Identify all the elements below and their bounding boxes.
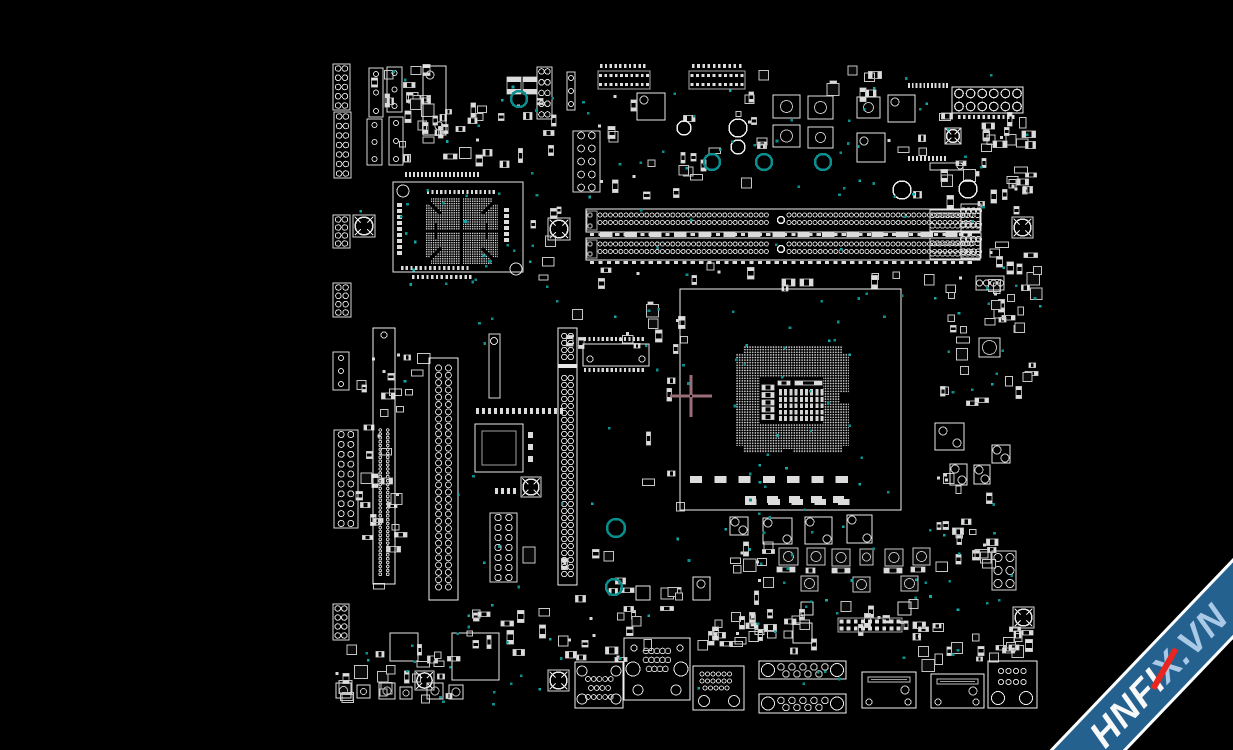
inductor xyxy=(847,515,872,543)
pad-circle xyxy=(491,338,498,345)
pcie-x1-slot[interactable] xyxy=(373,328,395,584)
smd-component-cluster xyxy=(335,645,459,703)
smd-passive xyxy=(806,568,815,573)
smd-passive xyxy=(777,567,795,572)
smd-component xyxy=(801,602,813,615)
component-outline xyxy=(489,334,500,398)
smd-component xyxy=(807,548,825,565)
ic-chip[interactable] xyxy=(857,133,885,162)
capacitor xyxy=(959,180,977,198)
pin-header xyxy=(334,112,351,178)
dimm-slot-2[interactable] xyxy=(586,238,980,264)
smd-component xyxy=(779,548,798,565)
smd-component-cluster xyxy=(964,128,1036,215)
chipset-bga[interactable] xyxy=(393,182,523,275)
pad-row xyxy=(600,232,958,237)
pad-row xyxy=(412,275,472,279)
smd-component-cluster xyxy=(598,92,767,199)
pin-header xyxy=(537,67,552,119)
boardview-canvas[interactable]: HNFIX.VN xyxy=(0,0,1233,750)
smd-passive xyxy=(778,381,790,385)
smd-component-cluster xyxy=(483,98,556,167)
capacitor-ring xyxy=(756,154,772,170)
capacitor xyxy=(677,121,691,135)
capacitor-ring xyxy=(606,579,622,595)
pad-row xyxy=(584,368,644,372)
usb-header[interactable] xyxy=(598,71,650,89)
pin-header xyxy=(333,283,351,317)
connector xyxy=(367,119,382,165)
smd-passive xyxy=(800,279,813,286)
connector xyxy=(333,352,349,390)
pad-row xyxy=(908,83,948,88)
ic-chip xyxy=(693,577,710,600)
mounting-hole xyxy=(548,670,569,691)
connector xyxy=(567,72,575,110)
smd-component-cluster xyxy=(937,473,992,503)
smd-passive xyxy=(911,567,925,572)
pin-header xyxy=(573,131,600,192)
inductor xyxy=(974,465,990,484)
pin-header xyxy=(333,604,349,640)
dimm-slot-1[interactable] xyxy=(586,209,980,236)
usb-port-row[interactable] xyxy=(759,661,846,679)
pad-row xyxy=(405,172,479,177)
smd-passive xyxy=(795,381,822,385)
pad-row xyxy=(600,64,646,68)
via-dots xyxy=(619,92,922,198)
smd-component xyxy=(901,576,918,591)
d-sub-connector[interactable] xyxy=(693,666,744,710)
inductor xyxy=(730,517,748,535)
pcie-x16-slot[interactable] xyxy=(429,358,458,600)
usb-port-row[interactable] xyxy=(759,694,846,713)
mounting-hole xyxy=(353,215,375,237)
usb-stack[interactable] xyxy=(862,672,916,708)
pad-row xyxy=(908,156,946,161)
smd-component xyxy=(808,96,833,119)
connector xyxy=(389,117,403,165)
usb-stack[interactable] xyxy=(931,674,984,708)
pin-header xyxy=(333,215,350,248)
smd-component xyxy=(773,125,800,147)
smd-component-cluster xyxy=(397,353,430,412)
io-controller[interactable] xyxy=(475,424,523,472)
smd-component-cluster xyxy=(372,65,452,123)
inductor xyxy=(763,518,792,544)
smd-component-cluster xyxy=(567,302,685,348)
smd-component-cluster xyxy=(598,263,934,291)
pad-row xyxy=(690,476,848,483)
capacitor-ring xyxy=(607,519,625,537)
socket-cap-bank xyxy=(779,389,824,421)
smd-component xyxy=(773,95,800,118)
capacitor-ring xyxy=(815,154,831,170)
smd-component xyxy=(885,549,903,566)
flash-chip[interactable] xyxy=(390,633,418,661)
connector xyxy=(369,68,383,117)
via-dots xyxy=(360,70,1029,705)
ic-chip[interactable] xyxy=(888,95,915,122)
smd-component-cluster xyxy=(467,608,568,655)
vga-connector[interactable] xyxy=(624,638,690,700)
smd-component xyxy=(523,547,535,563)
mounting-hole xyxy=(1013,607,1034,628)
pci-slot[interactable] xyxy=(558,328,577,585)
smd-component-cluster xyxy=(913,622,1033,672)
pcb-board-drawing[interactable] xyxy=(0,0,1233,750)
pad-row xyxy=(495,488,516,494)
selection-crosshair xyxy=(670,375,712,417)
smd-component xyxy=(832,549,850,566)
smd-component-cluster xyxy=(698,613,816,654)
mounting-hole xyxy=(1012,217,1033,238)
smd-component xyxy=(801,576,818,591)
smd-component-cluster xyxy=(936,519,998,572)
smd-component-cluster xyxy=(730,542,774,588)
inductor xyxy=(992,445,1010,463)
smd-passive xyxy=(523,77,537,94)
pad-row xyxy=(584,337,644,341)
capacitor xyxy=(729,119,747,137)
front-panel-header[interactable] xyxy=(334,430,358,528)
mounting-hole xyxy=(548,218,570,240)
smd-component xyxy=(913,548,930,565)
pin-header xyxy=(992,551,1016,590)
pin-header xyxy=(333,64,350,110)
cpu-socket-pin-grid[interactable] xyxy=(736,346,849,457)
smd-component xyxy=(400,687,412,699)
smd-component xyxy=(860,549,873,565)
pad-row xyxy=(476,408,563,414)
mounting-hole xyxy=(521,477,541,497)
smd-component-cluster xyxy=(566,634,627,662)
usb-header[interactable] xyxy=(490,513,517,582)
pad-row xyxy=(692,64,741,68)
inductor xyxy=(805,517,832,544)
audio-block[interactable] xyxy=(988,661,1037,708)
ic-chip[interactable] xyxy=(935,423,964,450)
smd-component-cluster xyxy=(399,99,486,166)
pad-circle xyxy=(957,163,963,169)
smd-passive xyxy=(832,568,850,573)
usb-header[interactable] xyxy=(689,71,745,89)
ic-chip xyxy=(636,586,650,600)
smd-component xyxy=(357,685,370,698)
audio-jack-block[interactable] xyxy=(575,662,623,708)
smd-component xyxy=(808,127,833,148)
smd-component xyxy=(853,577,870,592)
socket-cap-bank xyxy=(762,385,774,420)
smd-component-cluster xyxy=(562,550,759,651)
ic-chip[interactable] xyxy=(637,93,665,120)
smd-passive xyxy=(884,568,902,573)
smd-component xyxy=(979,338,1000,357)
pad-column xyxy=(528,432,533,462)
